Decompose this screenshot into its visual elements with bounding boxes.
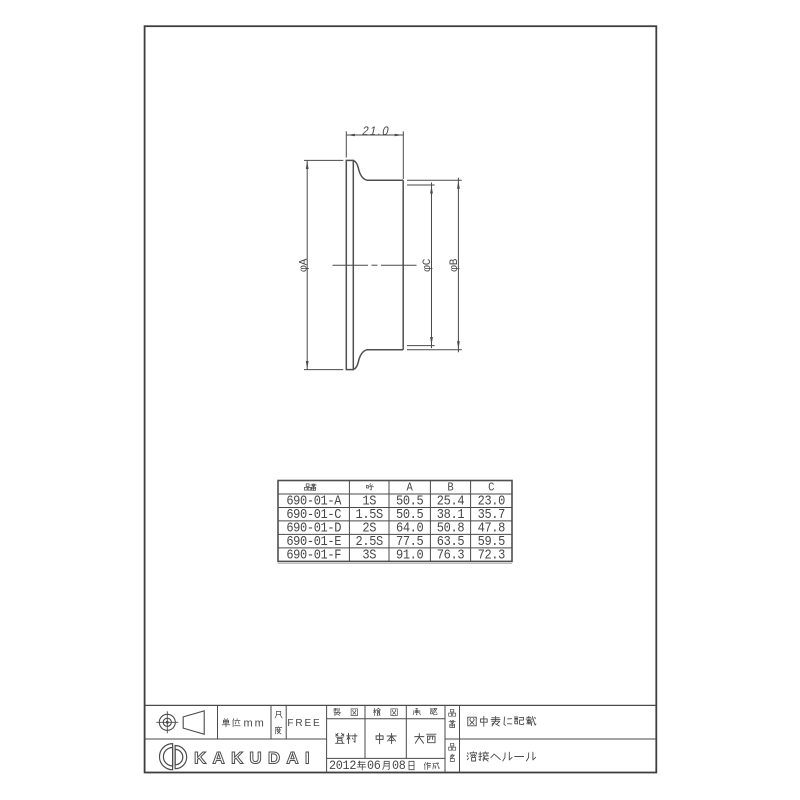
svg-text:mm: mm	[244, 718, 266, 730]
svg-text:3S: 3S	[362, 547, 376, 563]
svg-text:2012: 2012	[329, 759, 356, 774]
svg-text:08: 08	[392, 759, 406, 774]
svg-text:76.3: 76.3	[437, 547, 465, 563]
svg-text:φB: φB	[449, 258, 461, 272]
svg-text:FREE: FREE	[287, 718, 321, 729]
svg-text:72.3: 72.3	[478, 547, 506, 563]
svg-text:φC: φC	[422, 258, 434, 272]
svg-text:690-01-F: 690-01-F	[286, 547, 341, 563]
svg-text:KAKUDAI: KAKUDAI	[194, 748, 316, 767]
svg-text:φA: φA	[298, 258, 310, 272]
svg-text:21.0: 21.0	[361, 123, 392, 138]
svg-text:91.0: 91.0	[396, 547, 424, 563]
svg-text:06: 06	[367, 759, 381, 774]
